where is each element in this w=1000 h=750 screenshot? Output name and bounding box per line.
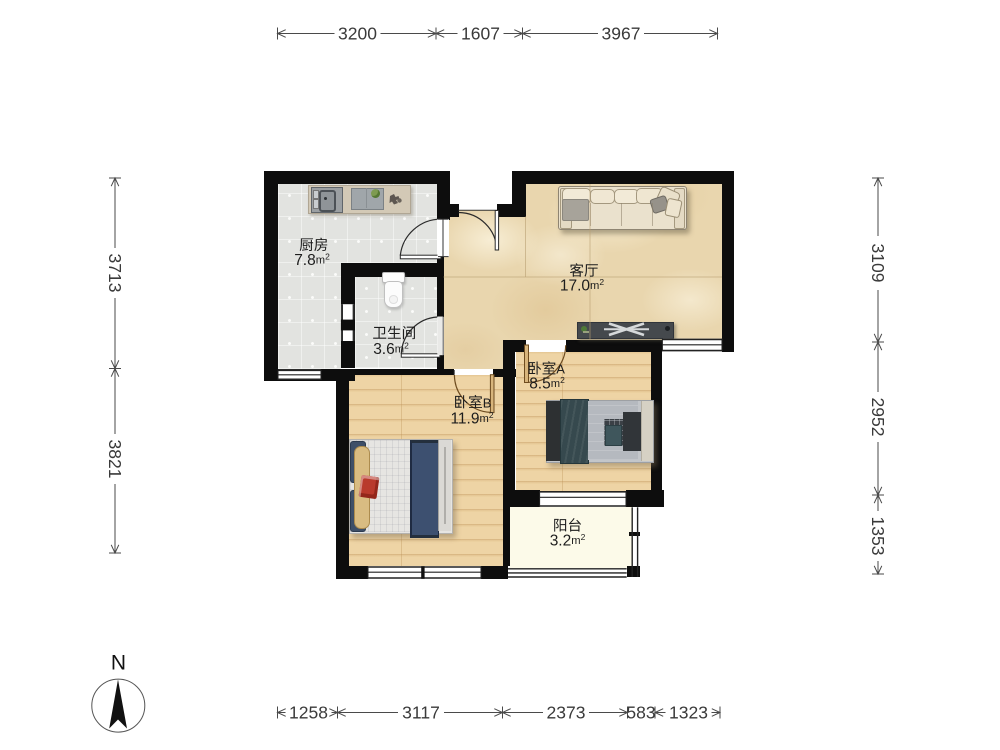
svg-text:N: N <box>111 652 126 675</box>
svg-text:1323: 1323 <box>669 703 708 723</box>
svg-text:1353: 1353 <box>868 517 888 556</box>
svg-text:3713: 3713 <box>105 254 125 293</box>
svg-text:1258: 1258 <box>289 703 328 723</box>
svg-text:3117: 3117 <box>402 703 440 723</box>
svg-text:17.0m2: 17.0m2 <box>560 277 605 295</box>
svg-text:8.5m2: 8.5m2 <box>529 375 565 393</box>
svg-text:11.9m2: 11.9m2 <box>450 410 493 428</box>
svg-text:3967: 3967 <box>602 24 641 44</box>
svg-text:3.6m2: 3.6m2 <box>373 341 409 359</box>
svg-text:3200: 3200 <box>338 24 377 44</box>
svg-text:1607: 1607 <box>461 24 500 44</box>
svg-text:2952: 2952 <box>868 398 888 437</box>
svg-text:7.8m2: 7.8m2 <box>294 252 330 270</box>
svg-text:583: 583 <box>626 703 655 723</box>
svg-text:3.2m2: 3.2m2 <box>550 532 586 550</box>
svg-text:B: B <box>483 395 492 410</box>
svg-text:3109: 3109 <box>868 244 888 283</box>
svg-text:2373: 2373 <box>547 703 586 723</box>
svg-text:3821: 3821 <box>105 440 125 479</box>
